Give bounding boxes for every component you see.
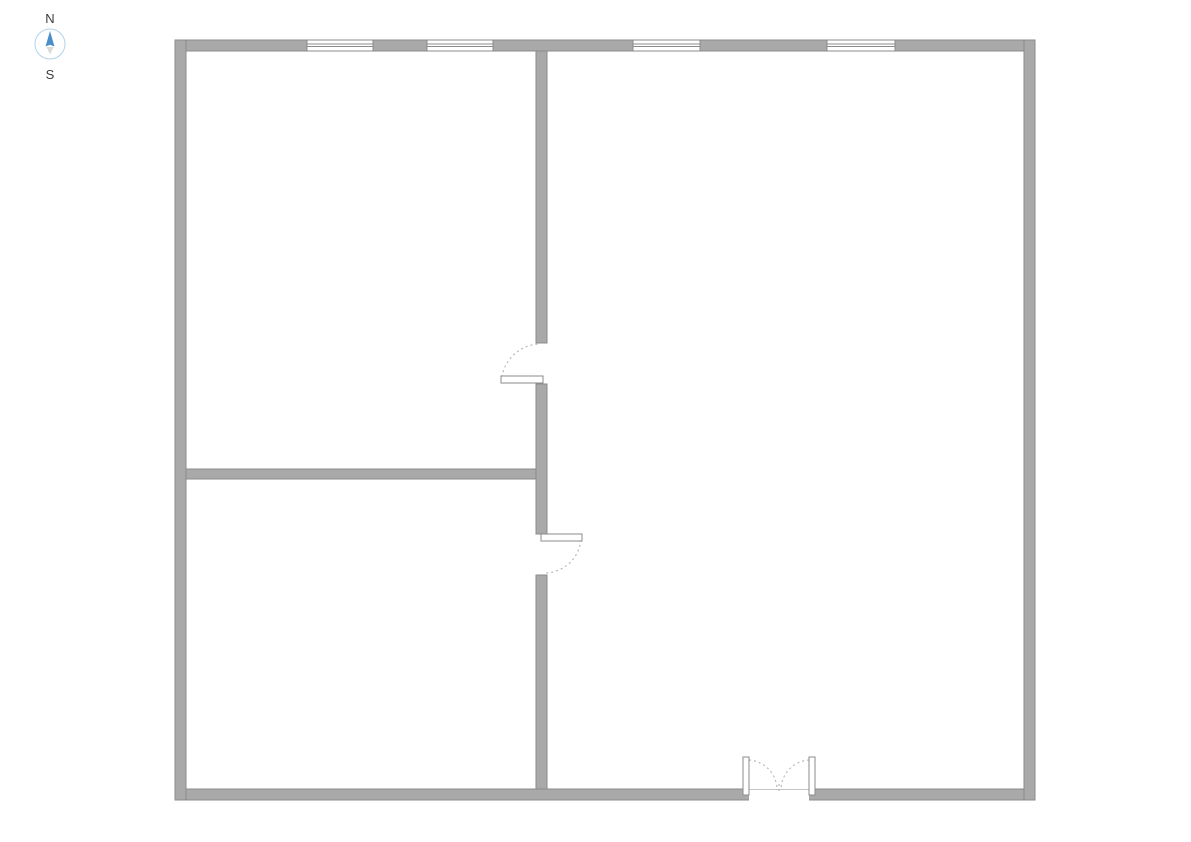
interior-wall-vertical-lower [536, 575, 547, 789]
outer-wall-left [175, 40, 186, 800]
outer-wall-right [1024, 40, 1035, 800]
room-lower-left [186, 479, 536, 789]
outer-wall-bottom [175, 789, 1035, 800]
window-2 [427, 40, 493, 51]
floor-plan-page: N S [0, 0, 1191, 842]
window-1 [307, 40, 373, 51]
entry-double-door-right-leaf-panel [809, 757, 815, 795]
interior-door-upper-panel [501, 376, 543, 383]
entry-double-door-left-leaf-panel [743, 757, 749, 795]
interior-wall-vertical-middle [536, 384, 547, 534]
room-upper-left [186, 51, 536, 469]
interior-door-lower-panel [541, 534, 582, 541]
room-right [547, 51, 1024, 789]
window-3 [633, 40, 700, 51]
interior-wall-horizontal [186, 469, 536, 479]
outer-wall-top [175, 40, 1035, 51]
window-4 [827, 40, 895, 51]
interior-wall-vertical-upper [536, 51, 547, 343]
floor-plan [0, 0, 1191, 842]
